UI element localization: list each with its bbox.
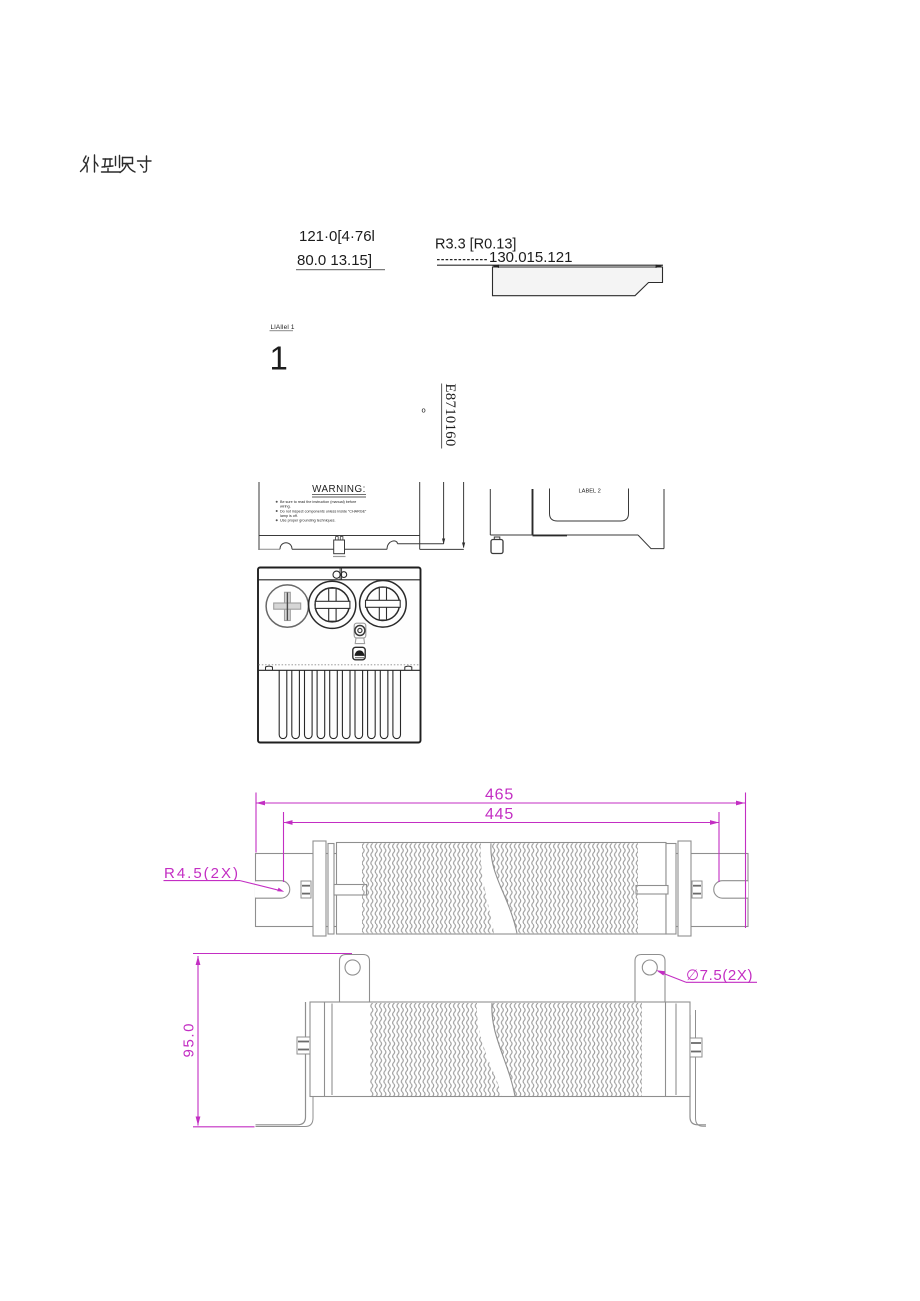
svg-text:LlAllel 1: LlAllel 1: [271, 324, 295, 331]
svg-text:Be sure to read the instructio: Be sure to read the instruction (manual)…: [280, 500, 356, 504]
svg-text:121·0[4·76l: 121·0[4·76l: [299, 228, 375, 245]
svg-text:∅7.5(2X): ∅7.5(2X): [686, 967, 753, 984]
svg-text:WARNING:: WARNING:: [312, 484, 366, 495]
svg-text:wiring.: wiring.: [280, 505, 291, 509]
svg-text:LABEL 2: LABEL 2: [579, 489, 601, 495]
svg-text:Do not inspect components unle: Do not inspect components unless inside …: [280, 510, 367, 514]
svg-text:lamp is off.: lamp is off.: [280, 514, 298, 518]
svg-text:Use proper grounding technique: Use proper grounding techniques.: [280, 519, 336, 523]
svg-text:R4.5(2X): R4.5(2X): [164, 865, 240, 882]
svg-text:o: o: [422, 406, 426, 415]
svg-text:465: 465: [485, 787, 514, 804]
svg-text:E8710160: E8710160: [442, 384, 458, 447]
svg-text:445: 445: [485, 806, 514, 823]
svg-text:1: 1: [270, 340, 288, 377]
svg-text:80.0 13.15]: 80.0 13.15]: [297, 252, 372, 269]
svg-text:95.0: 95.0: [181, 1022, 198, 1058]
svg-text:130.015.121: 130.015.121: [489, 249, 572, 266]
